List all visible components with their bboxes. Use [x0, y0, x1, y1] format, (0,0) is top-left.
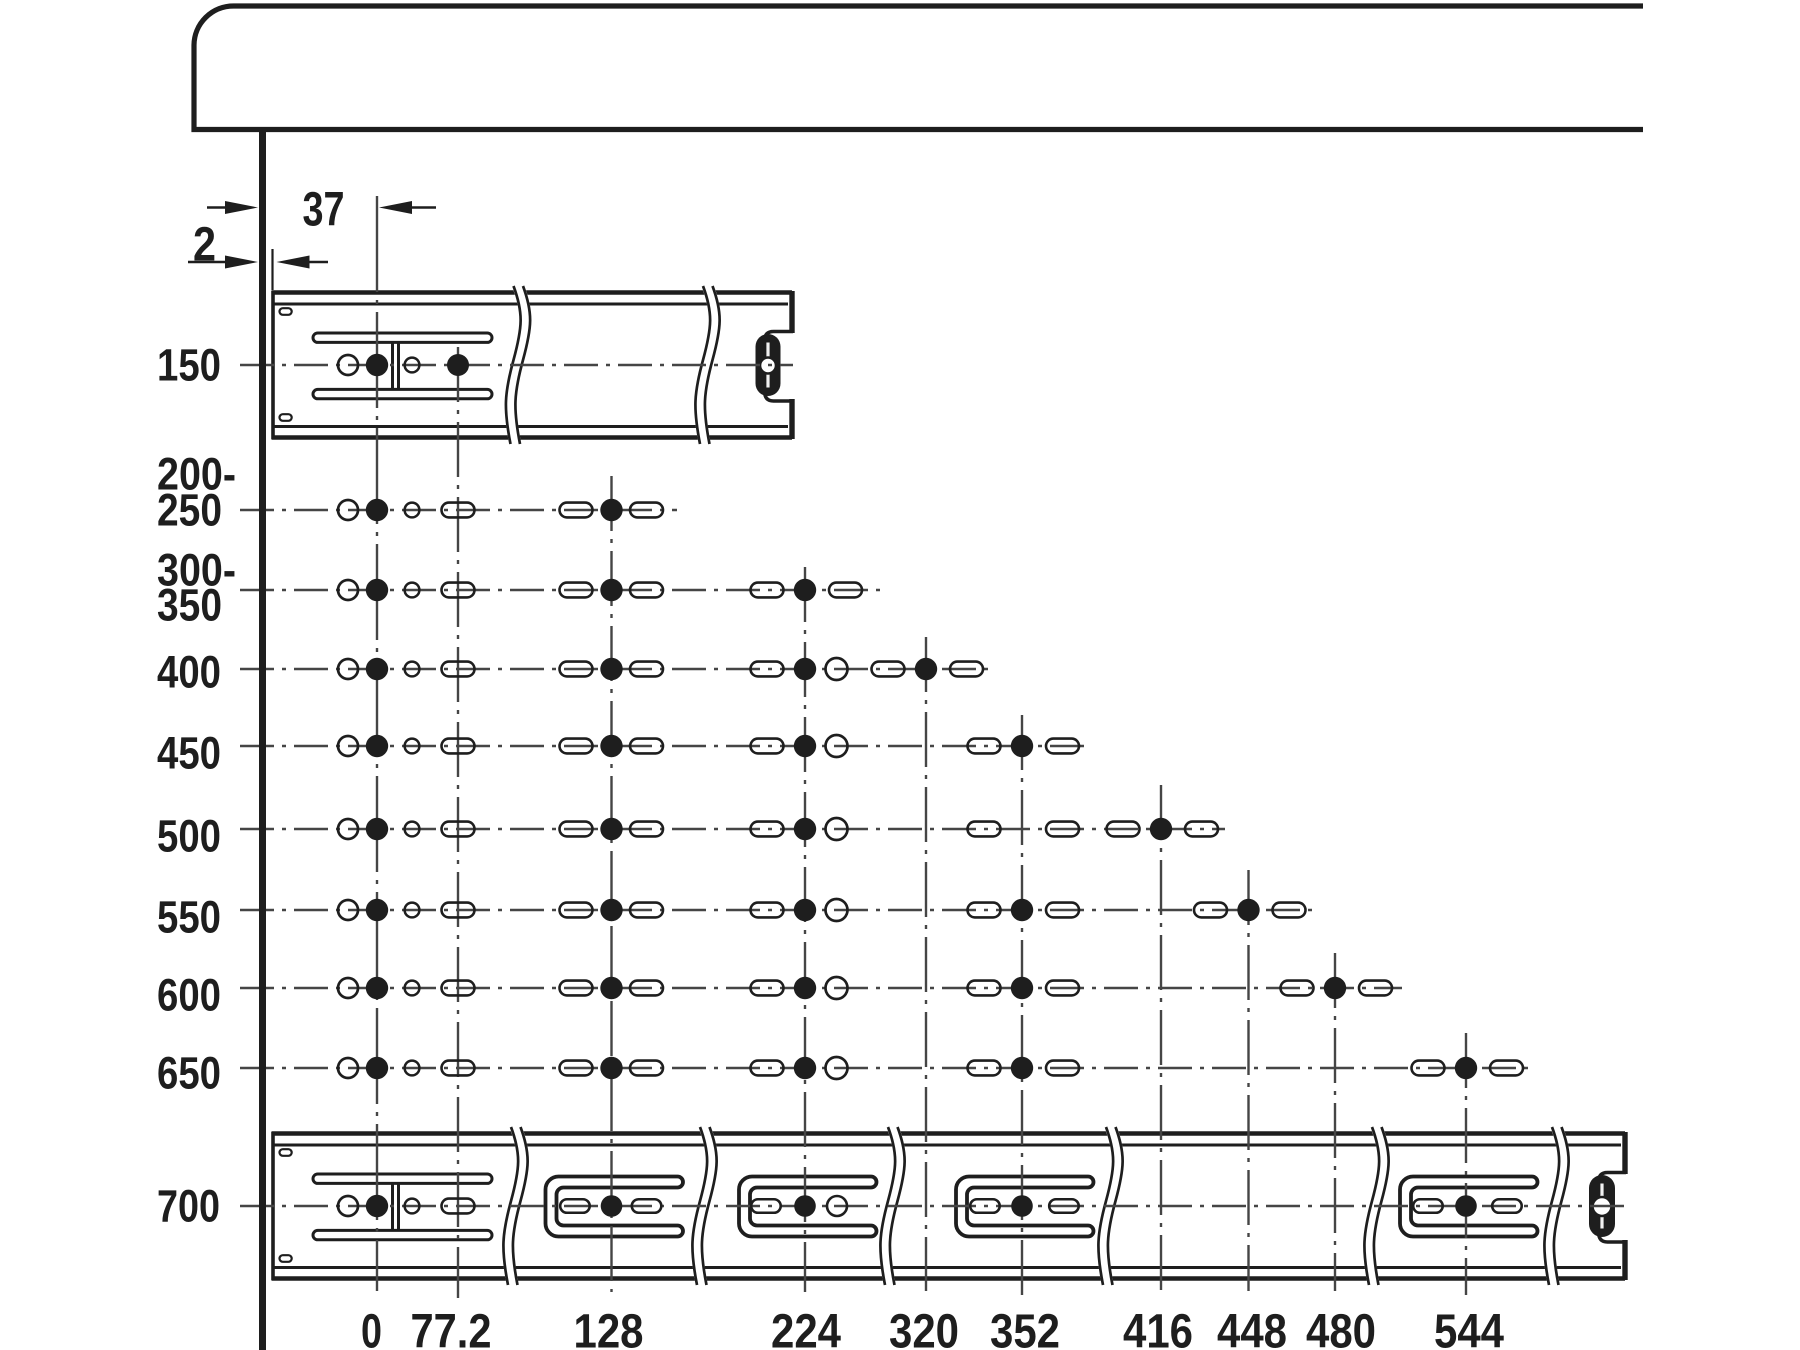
svg-text:448: 448: [1217, 1306, 1287, 1350]
svg-text:416: 416: [1123, 1306, 1193, 1350]
svg-text:320: 320: [889, 1306, 959, 1350]
svg-text:2: 2: [193, 219, 216, 272]
svg-text:37: 37: [303, 184, 345, 237]
svg-text:550: 550: [157, 892, 221, 943]
svg-text:544: 544: [1434, 1306, 1504, 1350]
svg-text:77.2: 77.2: [411, 1306, 492, 1350]
svg-text:150: 150: [157, 340, 221, 391]
svg-text:250: 250: [157, 485, 222, 536]
svg-text:450: 450: [157, 728, 221, 779]
svg-text:700: 700: [157, 1181, 220, 1232]
svg-text:352: 352: [990, 1306, 1060, 1350]
svg-text:500: 500: [157, 811, 221, 862]
svg-text:128: 128: [574, 1306, 644, 1350]
svg-text:350: 350: [157, 580, 222, 631]
svg-text:0: 0: [361, 1306, 382, 1350]
svg-text:600: 600: [157, 970, 221, 1021]
svg-text:400: 400: [157, 647, 221, 698]
svg-text:650: 650: [157, 1048, 221, 1099]
svg-text:224: 224: [771, 1306, 841, 1350]
svg-text:480: 480: [1306, 1306, 1376, 1350]
